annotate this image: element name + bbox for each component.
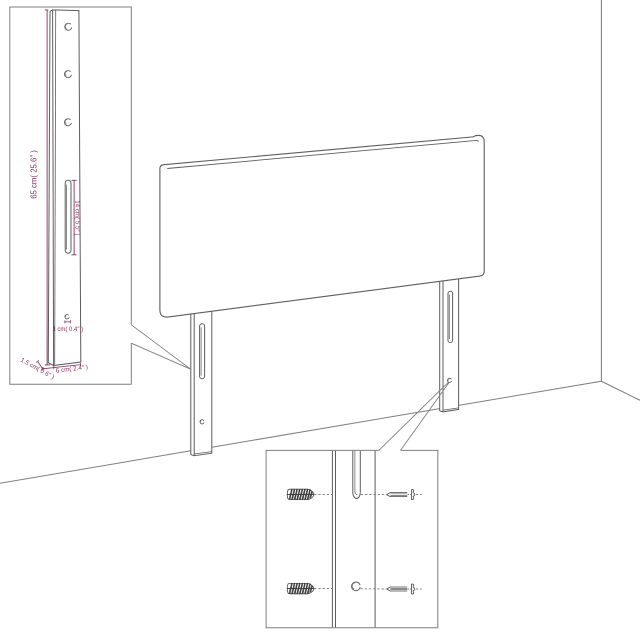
svg-text:14 cm( 5.5″ ): 14 cm( 5.5″ ) bbox=[74, 200, 81, 235]
svg-text:65 cm( 25.6″ ): 65 cm( 25.6″ ) bbox=[30, 150, 39, 199]
svg-text:1 cm( 0.4″ ): 1 cm( 0.4″ ) bbox=[52, 327, 83, 333]
